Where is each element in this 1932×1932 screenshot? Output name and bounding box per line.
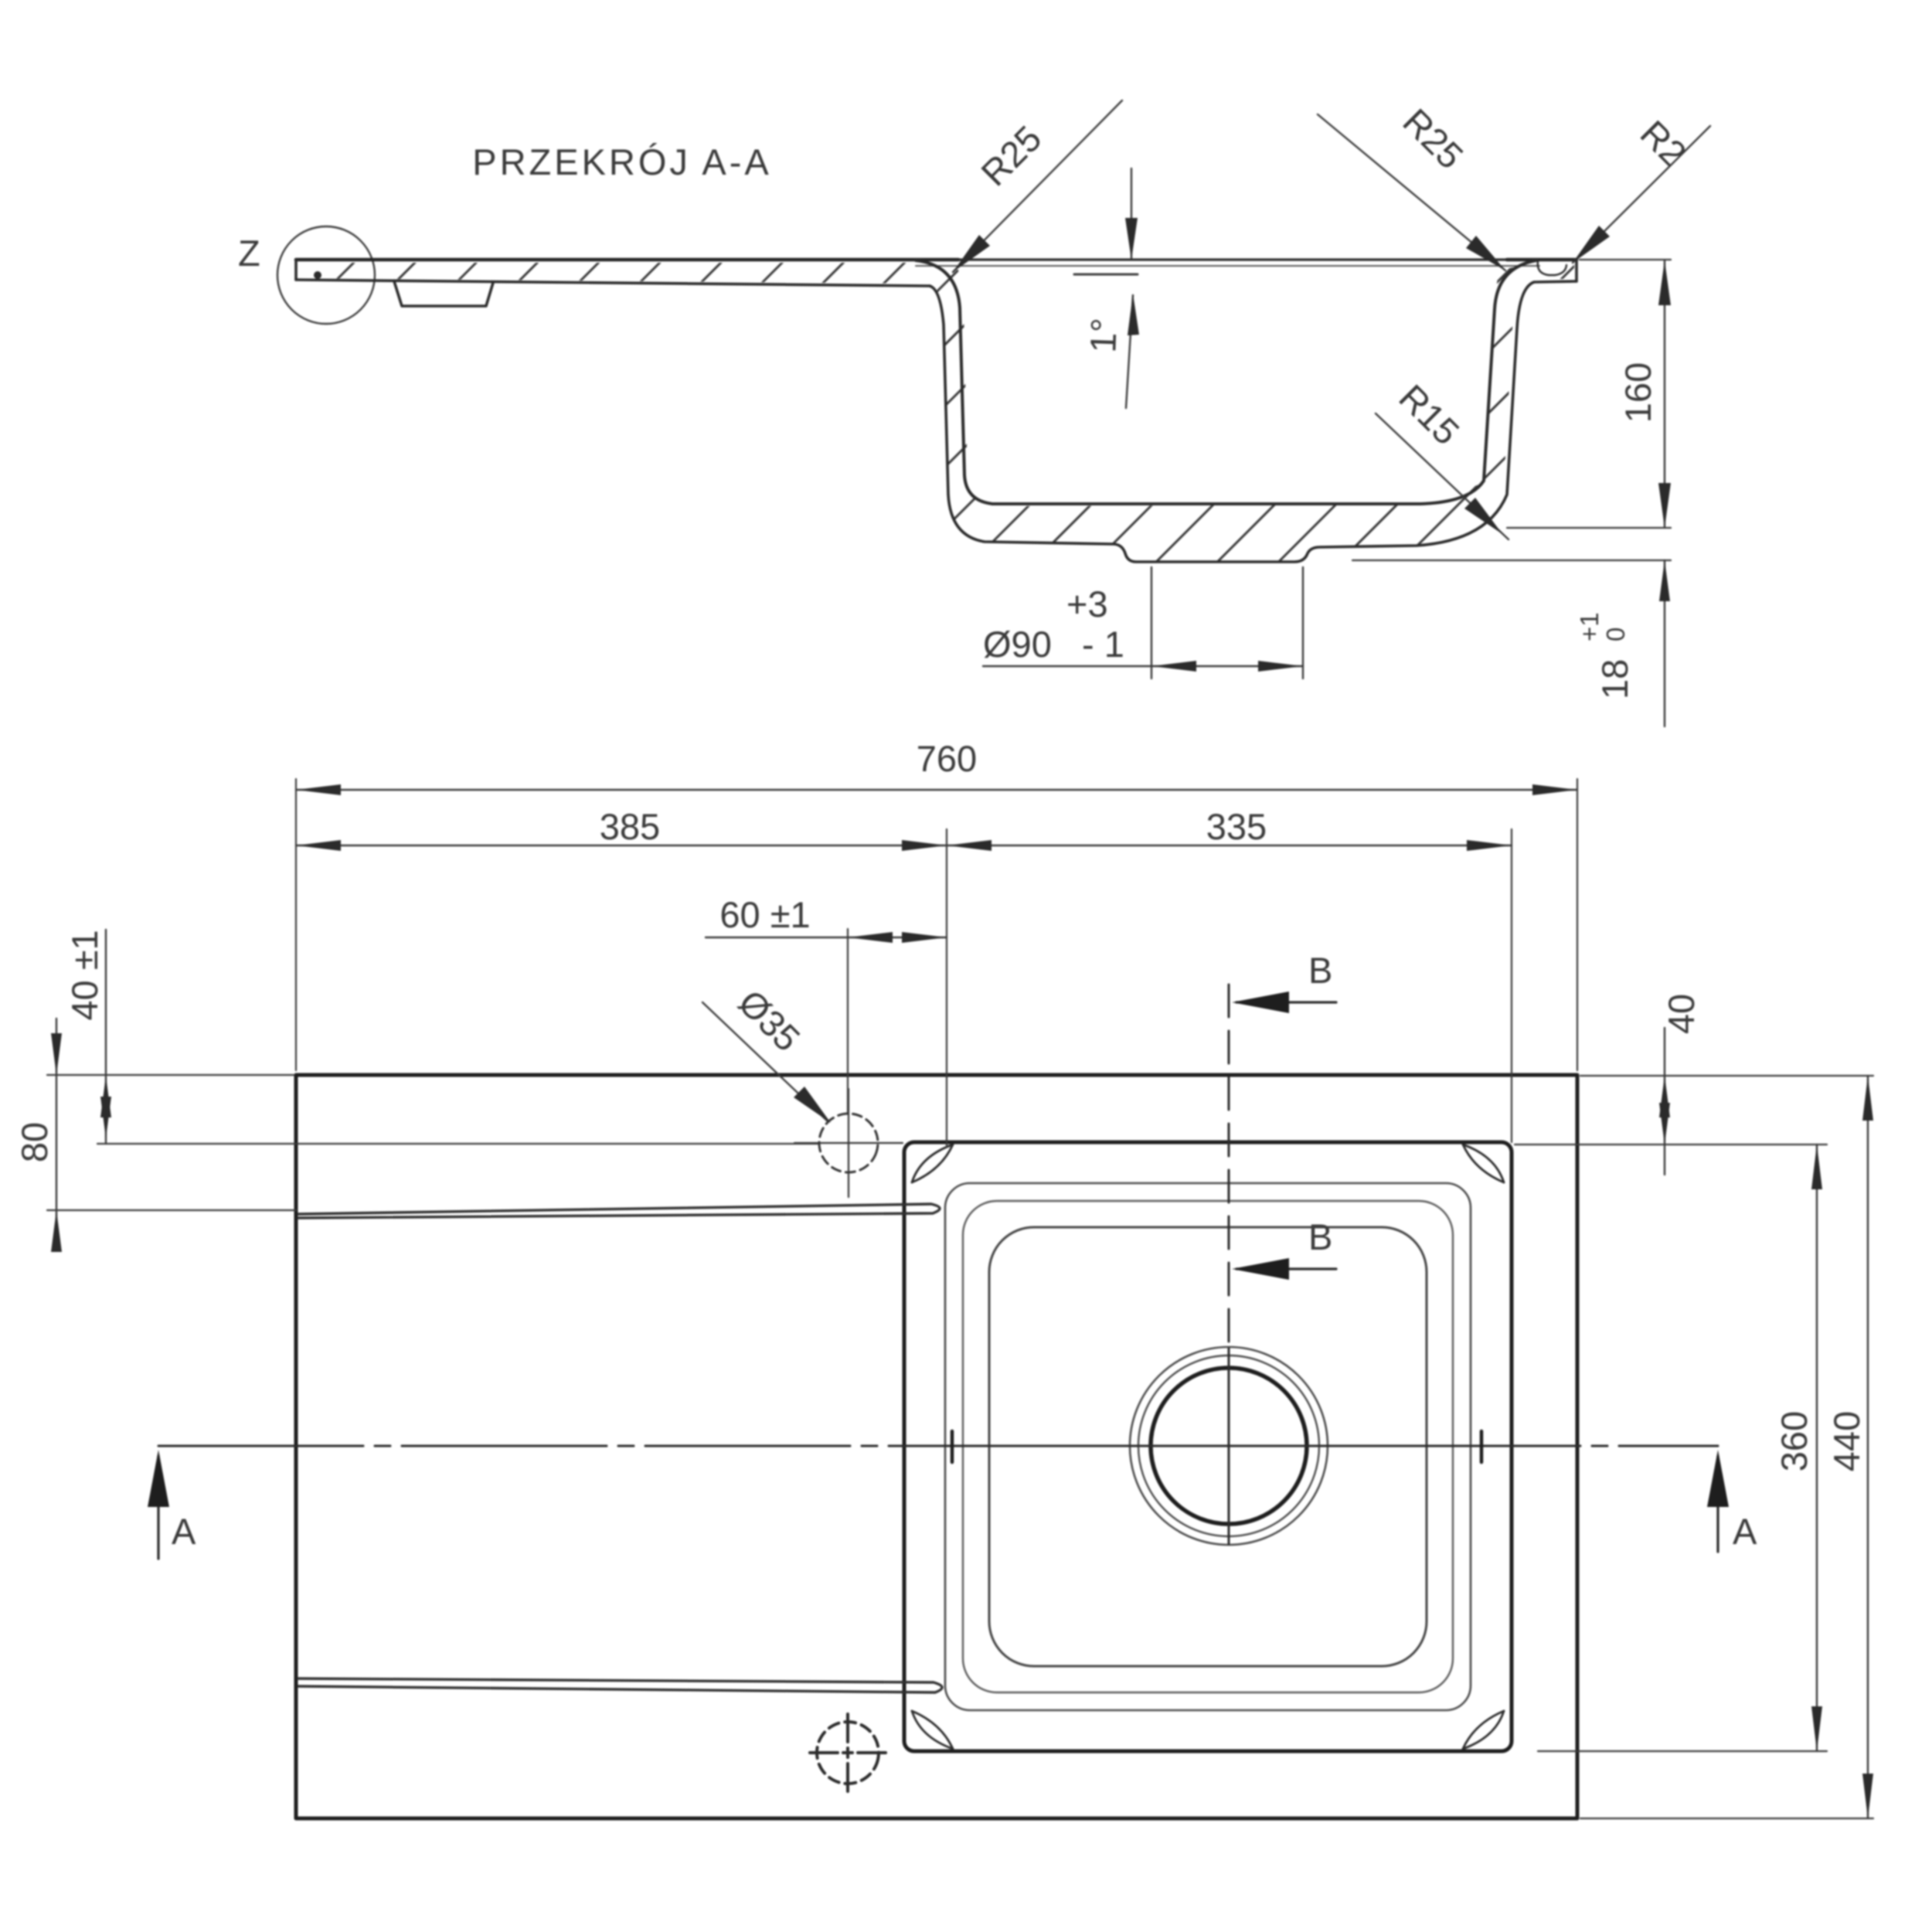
svg-text:760: 760: [917, 738, 977, 779]
svg-text:18: 18: [1594, 659, 1635, 699]
svg-text:B: B: [1308, 1216, 1332, 1257]
svg-text:- 1: - 1: [1082, 624, 1124, 665]
svg-text:60 ±1: 60 ±1: [719, 894, 810, 935]
svg-text:385: 385: [600, 806, 660, 847]
svg-text:0: 0: [1601, 628, 1630, 641]
svg-text:80: 80: [14, 1122, 55, 1162]
svg-text:A: A: [172, 1511, 196, 1552]
svg-text:B: B: [1308, 950, 1332, 991]
svg-text:PRZEKRÓJ A-A: PRZEKRÓJ A-A: [472, 141, 772, 182]
svg-text:440: 440: [1826, 1411, 1867, 1471]
svg-text:360: 360: [1774, 1411, 1815, 1471]
svg-text:335: 335: [1206, 806, 1267, 847]
svg-text:1°: 1°: [1082, 318, 1124, 354]
svg-text:Ø90: Ø90: [983, 624, 1052, 665]
svg-text:40 ±1: 40 ±1: [64, 930, 105, 1020]
svg-text:160: 160: [1617, 362, 1658, 423]
svg-text:40: 40: [1661, 994, 1702, 1034]
svg-text:+1: +1: [1575, 612, 1604, 641]
svg-text:+3: +3: [1066, 583, 1108, 624]
svg-text:Z: Z: [238, 233, 260, 274]
svg-text:A: A: [1733, 1511, 1757, 1552]
